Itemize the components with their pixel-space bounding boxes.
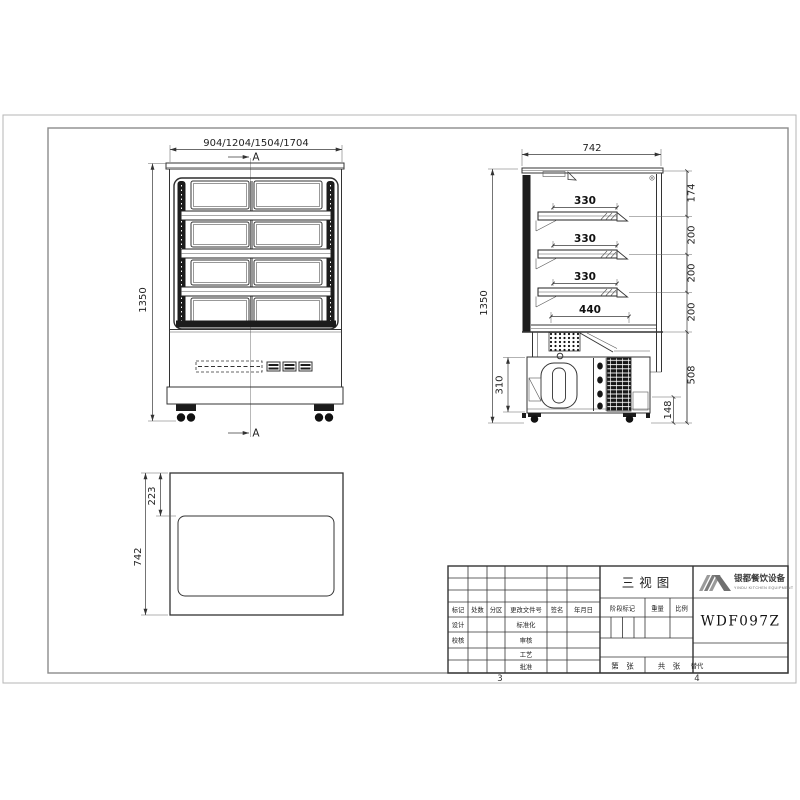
side-shelf-1: 330 xyxy=(536,195,628,231)
sheet-inner-frame xyxy=(48,128,788,673)
section-label-top: A xyxy=(252,152,260,164)
sheet-total-label: 共 张 xyxy=(658,662,681,671)
cell-review: 审核 xyxy=(520,636,533,645)
sheet-number-label: 第 张 xyxy=(611,661,634,671)
scale-label: 比例 xyxy=(675,604,688,613)
side-width-dim: 742 xyxy=(582,143,601,154)
chain-dim-148: 148 xyxy=(663,400,674,419)
side-base-deck: 440 xyxy=(522,304,663,332)
chain-dim-200b: 200 xyxy=(687,263,698,282)
drawing-sheet: 3 4 xyxy=(0,0,800,800)
front-height-dim: 1350 xyxy=(138,287,149,312)
front-vent-grille xyxy=(196,361,262,372)
side-view: 330 330 330 440 xyxy=(479,143,698,423)
front-casters xyxy=(176,405,334,422)
deck-dim-440: 440 xyxy=(579,304,601,316)
logo-wedge xyxy=(714,575,731,591)
chain-dim-174: 174 xyxy=(687,183,698,202)
side-height-dim: 1350 xyxy=(479,290,490,315)
hdr-date: 年月日 xyxy=(574,605,593,614)
side-shelf-3: 330 xyxy=(536,271,628,307)
stage-mark-label: 阶段标记 xyxy=(610,604,636,613)
zone-number-3: 3 xyxy=(497,674,502,684)
shelf-dim-2: 330 xyxy=(574,233,596,245)
side-dimensions: 742 1350 174 200 200 200 508 148 xyxy=(479,143,698,423)
compressor xyxy=(541,363,577,408)
side-shelf-2: 330 xyxy=(536,233,628,269)
top-outline xyxy=(170,473,343,615)
cell-standardize: 标准化 xyxy=(517,620,537,629)
shelf-dim-1: 330 xyxy=(574,195,596,207)
machine-dim-310: 310 xyxy=(495,375,506,394)
chain-dim-200c: 200 xyxy=(687,302,698,321)
shelf-dim-3: 330 xyxy=(574,271,596,283)
cell-design: 设计 xyxy=(452,620,465,629)
hdr-change-doc: 更改文件号 xyxy=(510,605,541,614)
front-width-dim: 904/1204/1504/1704 xyxy=(203,138,309,149)
top-inset-dim: 223 xyxy=(147,486,158,505)
cad-drawing: 3 4 xyxy=(0,0,800,800)
hdr-zone: 分区 xyxy=(490,605,503,614)
side-casters xyxy=(522,413,650,423)
front-switch-panel xyxy=(267,362,312,371)
chain-dim-508: 508 xyxy=(687,365,698,384)
top-depth-dim: 742 xyxy=(133,547,144,566)
side-front-glass xyxy=(523,175,531,332)
cell-check: 校核 xyxy=(452,636,465,645)
hdr-signature: 签名 xyxy=(551,605,564,614)
side-machine-compartment xyxy=(527,357,650,413)
front-plinth xyxy=(167,387,343,404)
chain-dim-200a: 200 xyxy=(687,225,698,244)
top-glass-opening xyxy=(178,516,334,596)
title-block: 标记 处数 分区 更改文件号 签名 年月日 设计 标准化 校核 审核 工艺 批准… xyxy=(448,566,794,673)
replace-label: 替代 xyxy=(691,661,704,670)
hdr-count: 处数 xyxy=(471,605,484,614)
weight-label: 重量 xyxy=(651,605,664,613)
section-label-bottom: A xyxy=(252,428,260,440)
front-view: 904/1204/1504/1704 1350 A A xyxy=(138,138,344,440)
company-logo xyxy=(699,575,731,591)
condenser-grille xyxy=(607,358,631,411)
cell-process: 工艺 xyxy=(520,651,533,659)
cell-approve: 批准 xyxy=(520,662,533,671)
drawing-title: 三视图 xyxy=(622,575,675,590)
company-name-en: YINDU KITCHEN EQUIPMENT xyxy=(734,586,794,590)
front-shelf-bars xyxy=(181,211,331,296)
company-name: 银都餐饮设备 xyxy=(733,573,786,583)
top-view: 742 223 xyxy=(133,473,343,615)
zone-number-4: 4 xyxy=(694,674,699,684)
model-number: WDF097Z xyxy=(701,614,781,630)
hdr-mark: 标记 xyxy=(452,605,465,614)
